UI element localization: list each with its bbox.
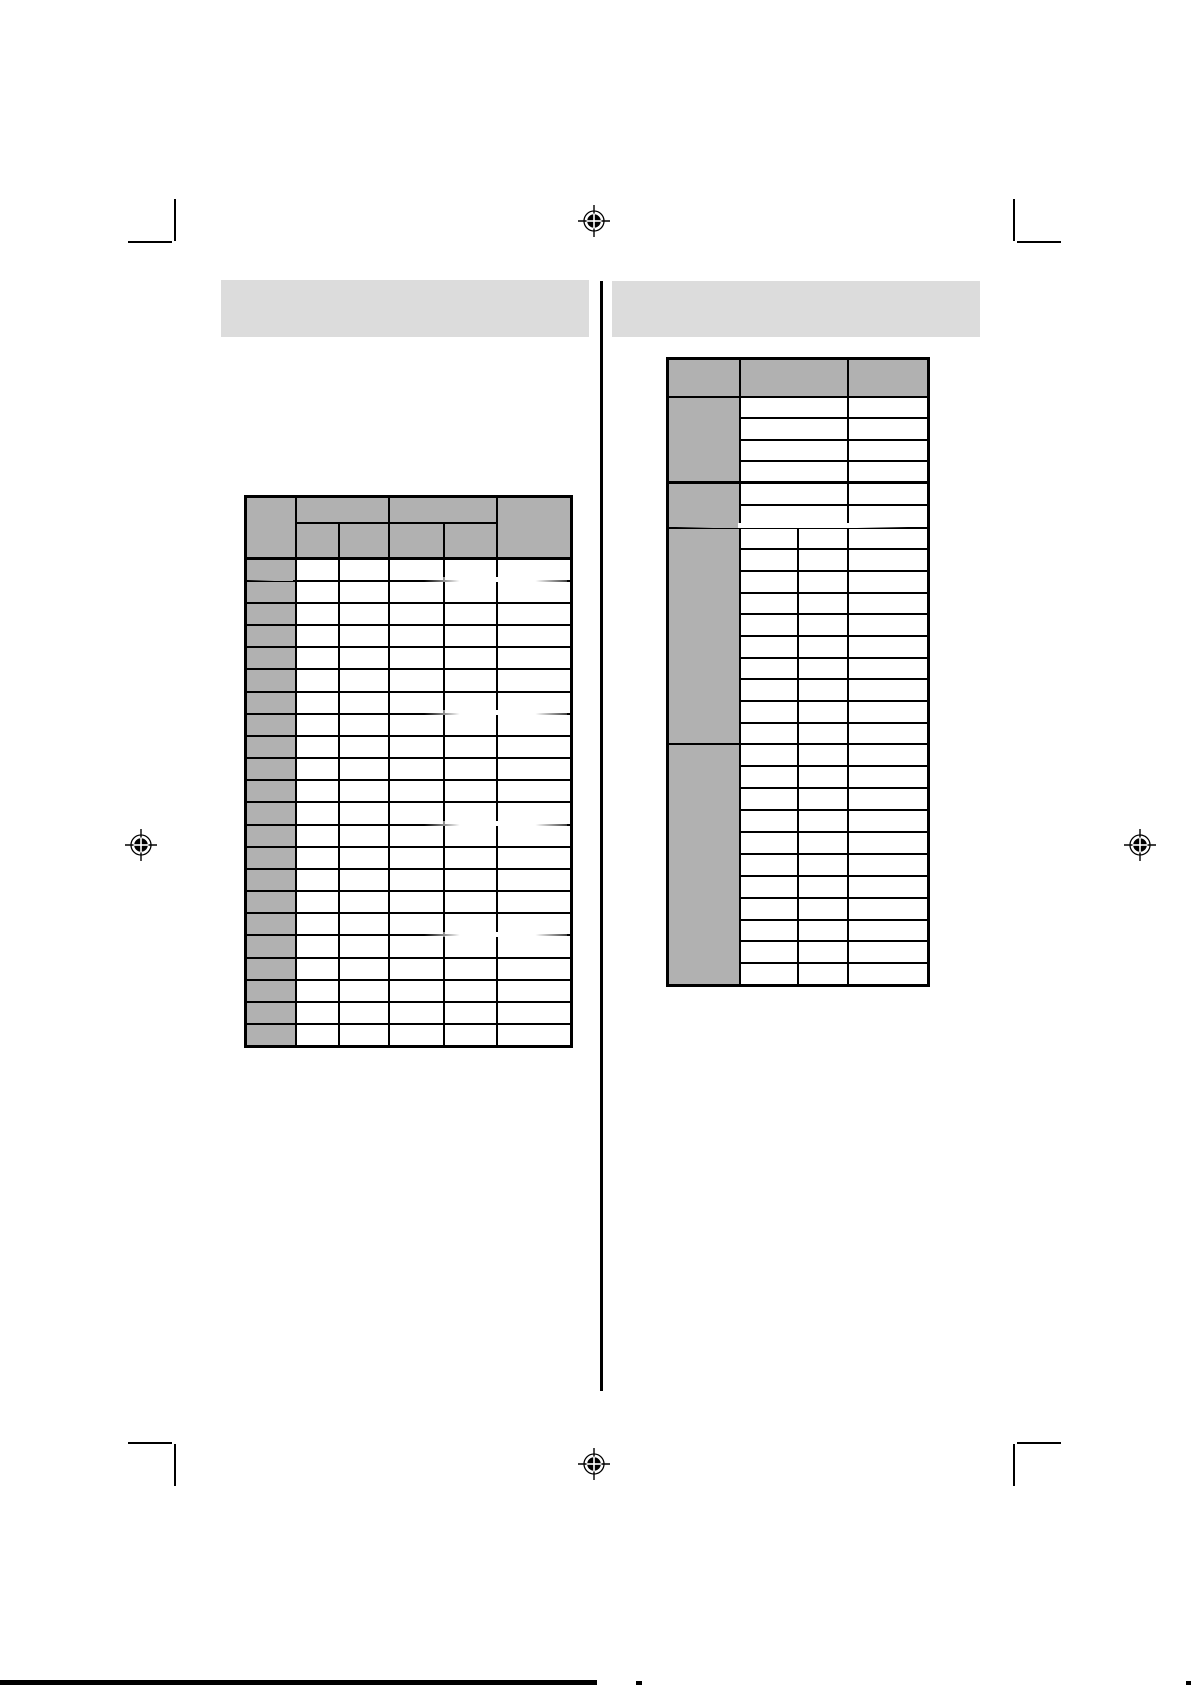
- data-cell: [848, 505, 929, 528]
- data-cell: [389, 980, 444, 1002]
- row-label-column-header: [246, 497, 296, 559]
- table-row: [246, 935, 572, 957]
- data-cell: [296, 825, 339, 847]
- data-cell: [798, 898, 848, 920]
- data-cell: [848, 898, 929, 920]
- data-cell: [296, 603, 339, 625]
- data-cell: [444, 736, 497, 758]
- data-cell: [389, 559, 444, 581]
- row-label-cell: [246, 714, 296, 736]
- data-cell: [848, 571, 929, 593]
- data-cell: [389, 935, 444, 957]
- data-cell: [848, 461, 929, 483]
- row-label-cell: [246, 736, 296, 758]
- data-cell: [444, 869, 497, 891]
- data-cell: [740, 701, 798, 723]
- data-cell: [389, 669, 444, 691]
- table-row: [246, 780, 572, 802]
- table-row: [246, 736, 572, 758]
- data-cell: [339, 802, 389, 824]
- data-cell: [339, 825, 389, 847]
- data-cell: [339, 625, 389, 647]
- data-cell: [389, 714, 444, 736]
- table-row: [246, 847, 572, 869]
- data-cell: [848, 920, 929, 942]
- data-cell: [740, 397, 848, 419]
- data-cell: [497, 847, 572, 869]
- data-cell: [444, 935, 497, 957]
- data-cell: [339, 669, 389, 691]
- data-cell: [444, 625, 497, 647]
- data-cell: [444, 714, 497, 736]
- crop-mark-vertical: [174, 1444, 176, 1486]
- data-cell: [296, 669, 339, 691]
- data-cell: [798, 854, 848, 876]
- column-header-1: [668, 359, 740, 397]
- data-cell: [848, 963, 929, 985]
- data-cell: [389, 758, 444, 780]
- data-cell: [798, 571, 848, 593]
- data-cell: [296, 847, 339, 869]
- data-cell: [296, 714, 339, 736]
- data-cell: [444, 559, 497, 581]
- section-label-cell: [668, 483, 740, 528]
- data-cell: [740, 898, 798, 920]
- data-cell: [740, 810, 798, 832]
- data-cell: [296, 958, 339, 980]
- data-cell: [497, 980, 572, 1002]
- crop-mark-vertical: [174, 199, 176, 241]
- data-cell: [798, 636, 848, 658]
- table-row: [246, 647, 572, 669]
- data-cell: [497, 1024, 572, 1046]
- data-cell: [848, 876, 929, 898]
- row-label-cell: [246, 913, 296, 935]
- data-cell: [848, 483, 929, 506]
- data-cell: [339, 603, 389, 625]
- document-page: [0, 0, 1191, 1685]
- data-cell: [389, 625, 444, 647]
- data-cell: [444, 802, 497, 824]
- data-cell: [798, 941, 848, 963]
- data-cell: [444, 1002, 497, 1024]
- data-cell: [444, 669, 497, 691]
- data-cell: [798, 679, 848, 701]
- data-cell: [740, 528, 798, 550]
- data-cell: [444, 603, 497, 625]
- data-cell: [497, 802, 572, 824]
- left-title-bar: [221, 280, 589, 337]
- registration-mark-icon: [124, 828, 158, 862]
- data-cell: [296, 758, 339, 780]
- data-cell: [497, 825, 572, 847]
- table-row: [246, 581, 572, 603]
- data-cell: [339, 758, 389, 780]
- data-cell: [798, 593, 848, 615]
- data-cell: [740, 832, 798, 854]
- data-cell: [444, 913, 497, 935]
- data-cell: [497, 559, 572, 581]
- data-cell: [497, 581, 572, 603]
- data-cell: [497, 1002, 572, 1024]
- data-cell: [339, 692, 389, 714]
- section-label-cell: [668, 528, 740, 745]
- data-cell: [497, 692, 572, 714]
- data-cell: [339, 1024, 389, 1046]
- page-bottom-tick: [1186, 1681, 1191, 1685]
- data-cell: [740, 941, 798, 963]
- page-bottom-tick: [636, 1681, 642, 1685]
- data-cell: [339, 714, 389, 736]
- row-label-cell: [246, 847, 296, 869]
- data-cell: [740, 614, 798, 636]
- data-cell: [740, 440, 848, 462]
- sub-header-4: [444, 523, 497, 559]
- data-cell: [848, 832, 929, 854]
- data-cell: [444, 647, 497, 669]
- data-cell: [848, 723, 929, 745]
- data-cell: [497, 736, 572, 758]
- data-cell: [444, 847, 497, 869]
- row-label-cell: [246, 625, 296, 647]
- data-cell: [740, 593, 798, 615]
- data-cell: [848, 788, 929, 810]
- crop-mark-horizontal: [1017, 1442, 1061, 1444]
- crop-mark-vertical: [1013, 199, 1015, 241]
- data-cell: [444, 958, 497, 980]
- left-data-table: [244, 495, 573, 1048]
- data-cell: [798, 963, 848, 985]
- row-label-cell: [246, 647, 296, 669]
- data-cell: [389, 603, 444, 625]
- row-label-cell: [246, 958, 296, 980]
- data-cell: [497, 935, 572, 957]
- table-row: [246, 891, 572, 913]
- registration-mark-icon: [1123, 828, 1157, 862]
- data-cell: [389, 581, 444, 603]
- data-cell: [339, 736, 389, 758]
- table-row: [668, 528, 929, 550]
- row-label-cell: [246, 780, 296, 802]
- data-cell: [339, 958, 389, 980]
- data-cell: [798, 701, 848, 723]
- data-cell: [444, 980, 497, 1002]
- data-cell: [339, 869, 389, 891]
- data-cell: [740, 636, 798, 658]
- table-row: [668, 359, 929, 397]
- data-cell: [740, 571, 798, 593]
- sub-header-1: [296, 523, 339, 559]
- data-cell: [389, 1002, 444, 1024]
- data-cell: [740, 854, 798, 876]
- data-cell: [389, 736, 444, 758]
- right-data-table: [666, 357, 930, 987]
- data-cell: [798, 876, 848, 898]
- data-cell: [296, 559, 339, 581]
- row-label-cell: [246, 758, 296, 780]
- data-cell: [798, 549, 848, 571]
- data-cell: [740, 766, 798, 788]
- data-cell: [798, 723, 848, 745]
- data-cell: [798, 810, 848, 832]
- table-row: [246, 980, 572, 1002]
- data-cell: [296, 802, 339, 824]
- row-label-cell: [246, 669, 296, 691]
- data-cell: [389, 802, 444, 824]
- data-cell: [798, 832, 848, 854]
- data-cell: [798, 788, 848, 810]
- data-cell: [848, 593, 929, 615]
- data-cell: [497, 913, 572, 935]
- data-cell: [848, 744, 929, 766]
- data-cell: [444, 581, 497, 603]
- data-cell: [296, 1002, 339, 1024]
- data-cell: [848, 679, 929, 701]
- data-cell: [389, 780, 444, 802]
- row-label-cell: [246, 559, 296, 581]
- data-cell: [798, 658, 848, 680]
- table-row: [668, 483, 929, 506]
- data-cell: [848, 418, 929, 440]
- data-cell: [798, 528, 848, 550]
- data-cell: [497, 780, 572, 802]
- column-header-3: [848, 359, 929, 397]
- data-cell: [848, 658, 929, 680]
- data-cell: [389, 825, 444, 847]
- crop-mark-vertical: [1013, 1444, 1015, 1486]
- row-label-cell: [246, 935, 296, 957]
- sub-header-2: [339, 523, 389, 559]
- row-label-cell: [246, 825, 296, 847]
- table-row: [246, 497, 572, 523]
- column-divider-rule: [600, 281, 603, 1391]
- table-row: [246, 559, 572, 581]
- registration-mark-icon: [577, 204, 611, 238]
- data-cell: [389, 958, 444, 980]
- table-row: [246, 1002, 572, 1024]
- data-cell: [296, 780, 339, 802]
- table-row: [246, 714, 572, 736]
- data-cell: [296, 1024, 339, 1046]
- section-label-cell: [668, 744, 740, 985]
- data-cell: [798, 744, 848, 766]
- sub-header-3: [389, 523, 444, 559]
- data-cell: [389, 869, 444, 891]
- data-cell: [848, 614, 929, 636]
- data-cell: [740, 744, 798, 766]
- data-cell: [497, 958, 572, 980]
- right-title-bar: [612, 281, 980, 337]
- data-cell: [444, 692, 497, 714]
- column-header-2: [740, 359, 848, 397]
- table-row: [246, 1024, 572, 1046]
- data-cell: [740, 963, 798, 985]
- data-cell: [389, 847, 444, 869]
- data-cell: [339, 559, 389, 581]
- data-cell: [444, 825, 497, 847]
- table-row: [246, 869, 572, 891]
- row-label-cell: [246, 1002, 296, 1024]
- data-cell: [740, 920, 798, 942]
- data-cell: [296, 980, 339, 1002]
- row-label-cell: [246, 692, 296, 714]
- row-label-cell: [246, 1024, 296, 1046]
- data-cell: [497, 869, 572, 891]
- table-row: [668, 744, 929, 766]
- data-cell: [339, 647, 389, 669]
- data-cell: [740, 658, 798, 680]
- data-cell: [848, 701, 929, 723]
- table-row: [246, 802, 572, 824]
- table-row: [668, 397, 929, 419]
- data-cell: [339, 1002, 389, 1024]
- data-cell: [444, 891, 497, 913]
- data-cell: [740, 505, 848, 528]
- data-cell: [848, 941, 929, 963]
- data-cell: [740, 483, 848, 506]
- section-label-cell: [668, 397, 740, 483]
- data-cell: [740, 876, 798, 898]
- table-row: [246, 913, 572, 935]
- table-row: [246, 692, 572, 714]
- data-cell: [497, 603, 572, 625]
- data-cell: [339, 581, 389, 603]
- data-cell: [339, 891, 389, 913]
- data-cell: [848, 528, 929, 550]
- data-cell: [296, 736, 339, 758]
- table-row: [246, 625, 572, 647]
- data-cell: [740, 788, 798, 810]
- data-cell: [296, 692, 339, 714]
- data-cell: [339, 780, 389, 802]
- table-row: [246, 758, 572, 780]
- data-cell: [740, 418, 848, 440]
- data-cell: [848, 810, 929, 832]
- group-header-2: [389, 497, 497, 523]
- data-cell: [798, 614, 848, 636]
- data-cell: [296, 581, 339, 603]
- right-column-header: [497, 497, 572, 559]
- data-cell: [339, 935, 389, 957]
- data-cell: [740, 461, 848, 483]
- data-cell: [389, 891, 444, 913]
- data-cell: [497, 647, 572, 669]
- data-cell: [444, 780, 497, 802]
- data-cell: [798, 920, 848, 942]
- data-cell: [296, 891, 339, 913]
- table-row: [246, 958, 572, 980]
- data-cell: [848, 397, 929, 419]
- data-cell: [740, 549, 798, 571]
- data-cell: [798, 766, 848, 788]
- data-cell: [339, 913, 389, 935]
- data-cell: [497, 891, 572, 913]
- table-row: [246, 603, 572, 625]
- table-row: [246, 825, 572, 847]
- row-label-cell: [246, 869, 296, 891]
- data-cell: [444, 758, 497, 780]
- page-bottom-rule: [0, 1680, 597, 1685]
- data-cell: [339, 980, 389, 1002]
- data-cell: [740, 679, 798, 701]
- row-label-cell: [246, 603, 296, 625]
- data-cell: [740, 723, 798, 745]
- row-label-cell: [246, 802, 296, 824]
- data-cell: [497, 758, 572, 780]
- data-cell: [389, 692, 444, 714]
- registration-mark-icon: [577, 1447, 611, 1481]
- group-header-1: [296, 497, 389, 523]
- data-cell: [296, 647, 339, 669]
- data-cell: [339, 847, 389, 869]
- data-cell: [497, 714, 572, 736]
- data-cell: [848, 766, 929, 788]
- data-cell: [444, 1024, 497, 1046]
- table-row: [246, 669, 572, 691]
- data-cell: [389, 913, 444, 935]
- data-cell: [389, 647, 444, 669]
- crop-mark-horizontal: [128, 241, 172, 243]
- data-cell: [848, 440, 929, 462]
- data-cell: [497, 669, 572, 691]
- row-label-cell: [246, 581, 296, 603]
- data-cell: [848, 636, 929, 658]
- data-cell: [296, 625, 339, 647]
- data-cell: [848, 549, 929, 571]
- data-cell: [296, 935, 339, 957]
- crop-mark-horizontal: [128, 1442, 172, 1444]
- data-cell: [296, 869, 339, 891]
- data-cell: [848, 854, 929, 876]
- row-label-cell: [246, 980, 296, 1002]
- crop-mark-horizontal: [1017, 241, 1061, 243]
- data-cell: [389, 1024, 444, 1046]
- data-cell: [296, 913, 339, 935]
- data-cell: [497, 625, 572, 647]
- row-label-cell: [246, 891, 296, 913]
